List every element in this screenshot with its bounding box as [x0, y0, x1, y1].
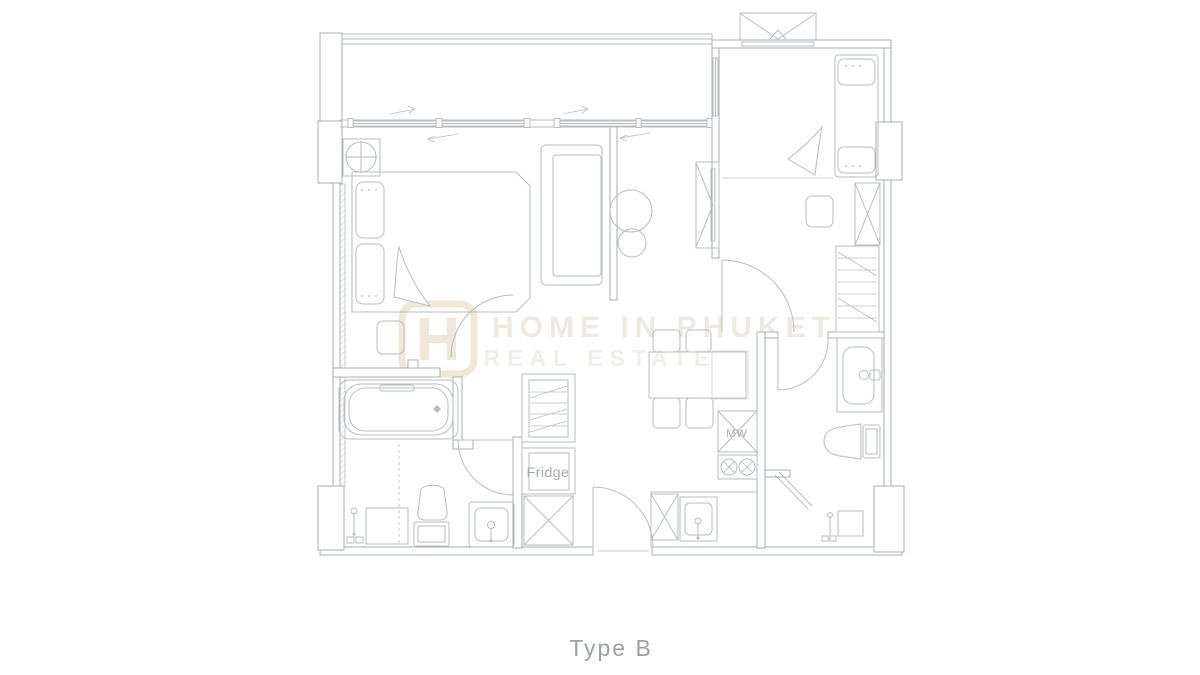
nightstand	[343, 139, 380, 176]
kitchen-sink	[680, 497, 717, 541]
watermark-line1: HOME IN PHUKET	[492, 311, 836, 344]
hob	[718, 455, 757, 479]
fridge-label: Fridge	[527, 464, 570, 480]
wardrobe	[855, 183, 880, 245]
bedroom-2	[722, 55, 880, 332]
balcony-rail	[342, 34, 712, 44]
toilet	[824, 424, 880, 459]
toilet	[414, 485, 449, 546]
linen-shelves	[522, 374, 575, 442]
crossed-cabinet	[524, 496, 573, 545]
floor-plan: HOME IN PHUKET REAL ESTATE	[0, 0, 1200, 675]
microwave-label: MW	[726, 428, 748, 440]
bathroom-1	[339, 380, 514, 547]
microwave: MW	[718, 411, 757, 452]
fridge-column: Fridge	[522, 374, 575, 545]
doors	[451, 260, 828, 551]
plan-title: Type B	[569, 635, 653, 661]
ac-unit	[740, 13, 816, 40]
sofa	[541, 145, 602, 285]
bathtub	[339, 380, 458, 439]
shower	[822, 511, 863, 541]
base-cabinet	[651, 494, 678, 540]
living-room	[541, 145, 719, 285]
chair	[806, 196, 833, 227]
bathroom-2-door	[778, 338, 828, 390]
entry-door	[593, 487, 653, 551]
bathroom-2	[775, 338, 882, 541]
windows	[340, 42, 814, 142]
shower	[347, 508, 408, 544]
bathroom-sink	[469, 502, 514, 547]
watermark: HOME IN PHUKET REAL ESTATE	[402, 304, 836, 374]
vanity-sink	[837, 338, 882, 412]
shelving-unit	[836, 246, 879, 332]
floor-plan-page: HOME IN PHUKET REAL ESTATE	[0, 0, 1200, 675]
watermark-line2: REAL ESTATE	[484, 345, 717, 371]
fridge: Fridge	[522, 448, 575, 494]
shower-glass	[775, 472, 812, 509]
single-bed	[788, 55, 878, 177]
double-bed	[352, 172, 530, 312]
